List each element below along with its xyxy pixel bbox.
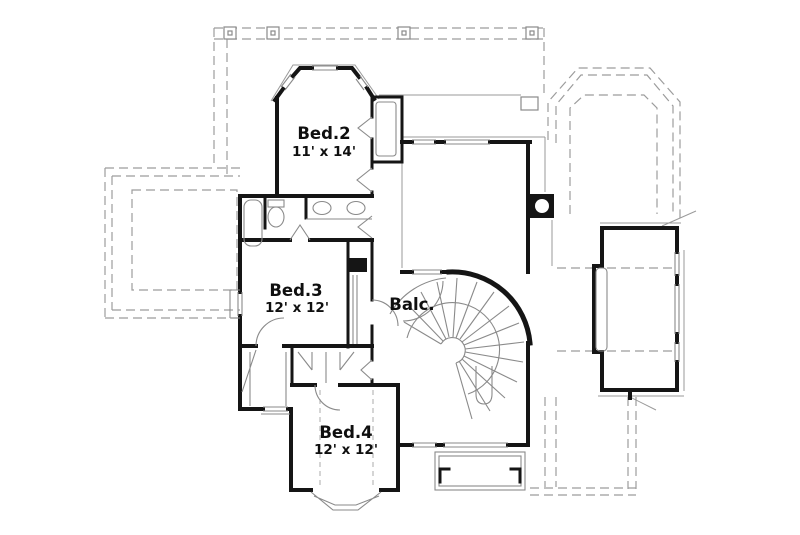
leader-lines	[628, 211, 696, 410]
bath-bed3-door-swing	[290, 225, 310, 240]
hall-closet-door-swing	[361, 360, 372, 380]
porch-inner-outline	[439, 456, 521, 486]
stair-inner-rail	[441, 338, 465, 363]
room-size-bed2: 11' x 14'	[292, 144, 356, 160]
roof-post	[271, 31, 275, 35]
bath-divider-walls	[265, 196, 306, 228]
closet-left-window	[261, 407, 290, 414]
porch-post-right	[511, 469, 520, 482]
roof-outline-left	[105, 168, 240, 318]
room-label-bed3: Bed.3	[269, 281, 322, 300]
hall-closet-shelves	[353, 275, 357, 344]
floor-plan-drawing: Bed.2 11' x 14' Bed.3 12' x 12' Bed.4 12…	[0, 0, 800, 535]
balcony-overlook-opening	[412, 270, 442, 274]
porch-roof-dashes	[530, 397, 636, 495]
toilet-tank	[268, 200, 284, 207]
thin-detail-lines	[271, 65, 696, 410]
roof-post	[530, 31, 534, 35]
porch-post-left	[440, 469, 449, 482]
roof-outline-upper-right	[548, 68, 680, 218]
floor-plan-canvas: Bed.2 11' x 14' Bed.3 12' x 12' Bed.4 12…	[0, 0, 800, 535]
room-label-bed2: Bed.2	[297, 124, 350, 143]
bed2-closet-rod	[376, 102, 396, 156]
room-label-balcony: Balc.	[389, 295, 434, 314]
right-room-roof-dashes	[557, 268, 674, 351]
roof-post	[521, 97, 538, 110]
hall-bottom-windows	[412, 443, 508, 447]
bed2-door-swing	[357, 168, 372, 192]
bed4-door-arc	[315, 385, 340, 410]
bed4-closet-doors	[298, 352, 354, 383]
toilet-bowl	[268, 207, 284, 227]
bed4-bay-window	[311, 492, 381, 510]
roof-dashed-rect-inner	[132, 190, 237, 290]
right-room-overhang	[598, 223, 684, 396]
curved-staircase	[390, 272, 530, 419]
room-size-bed4: 12' x 12'	[314, 442, 378, 458]
roof-post	[228, 31, 232, 35]
chase-block	[348, 258, 367, 272]
porch	[435, 452, 525, 490]
gameroom-top-windows	[412, 140, 490, 144]
right-room-windows	[675, 252, 679, 362]
vanity-sink-left	[313, 202, 331, 215]
roof-octagon-offset	[556, 75, 673, 216]
chimney-flue-circle	[535, 199, 549, 213]
vanity-sink-right	[347, 202, 365, 215]
walkin-closet-rods	[242, 350, 286, 406]
walkin-closet-door-arc	[256, 318, 284, 346]
bed3-left-window	[230, 290, 242, 318]
chimney	[530, 194, 554, 218]
stair-curved-wall	[449, 272, 530, 343]
window-seat	[596, 268, 607, 351]
roof-octagon-inner	[570, 95, 657, 214]
room-size-bed3: 12' x 12'	[265, 300, 329, 316]
room-label-bed4: Bed.4	[319, 423, 372, 442]
porch-outline	[435, 452, 525, 490]
roof-post	[402, 31, 406, 35]
bed2-closet-door-swing	[358, 117, 372, 139]
